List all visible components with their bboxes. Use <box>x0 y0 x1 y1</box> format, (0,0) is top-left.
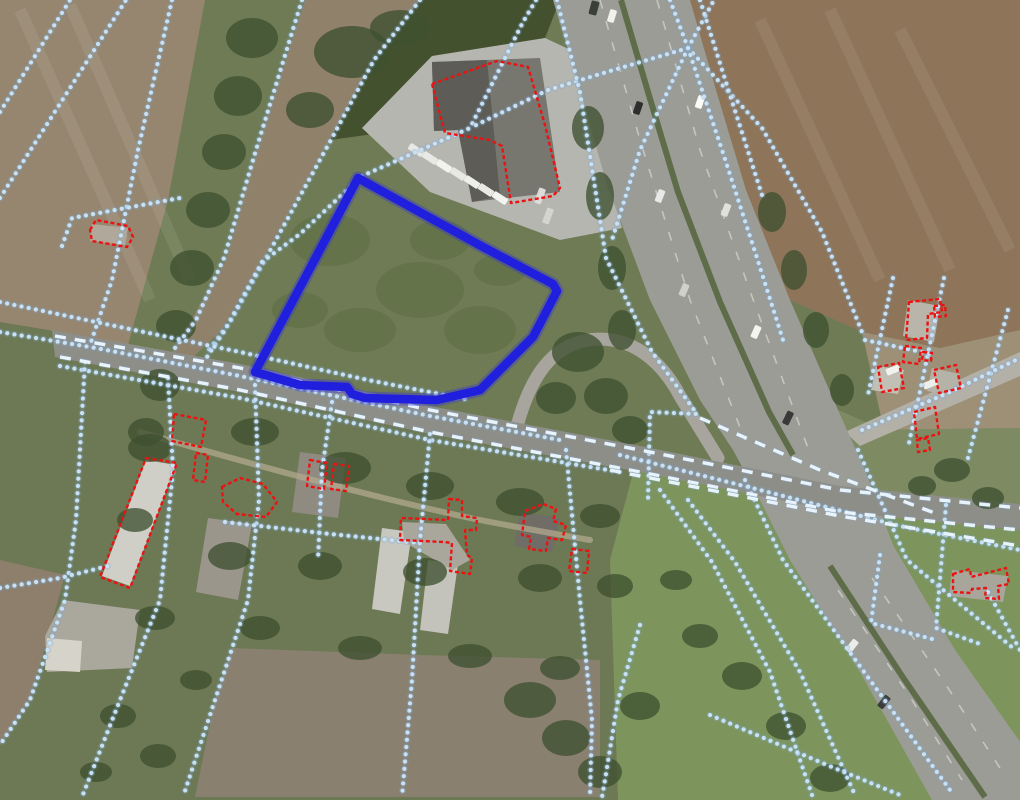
map-viewport[interactable] <box>0 0 1020 800</box>
tree-clump <box>612 416 648 444</box>
aerial-cadastral-map[interactable] <box>0 0 1020 800</box>
scrub-patch <box>444 306 516 354</box>
tree-clump <box>180 670 212 690</box>
tree-clump <box>448 644 492 668</box>
scrub-patch <box>376 262 464 318</box>
tree-clump <box>803 312 829 348</box>
tree-clump <box>214 76 262 116</box>
tree-clump <box>584 378 628 414</box>
tree-clump <box>781 250 807 290</box>
tree-clump <box>620 692 660 720</box>
tree-clump <box>403 558 447 586</box>
tree-clump <box>504 682 556 718</box>
tree-clump <box>186 192 230 228</box>
tree-clump <box>338 636 382 660</box>
tree-clump <box>208 542 252 570</box>
tree-clump <box>578 756 622 788</box>
tree-clump <box>908 476 936 496</box>
tree-clump <box>406 472 454 500</box>
field-bottom-center-brown <box>195 648 600 797</box>
tree-clump <box>536 382 576 414</box>
scrub-patch <box>324 308 396 352</box>
tree-clump <box>580 504 620 528</box>
tree-clump <box>540 656 580 680</box>
tree-clump <box>830 374 854 406</box>
tree-clump <box>240 616 280 640</box>
tree-clump <box>934 458 970 482</box>
tree-clump <box>542 720 590 756</box>
tree-clump <box>226 18 278 58</box>
tree-clump <box>552 332 604 372</box>
tree-clump <box>170 250 214 286</box>
tree-clump <box>660 570 692 590</box>
tree-clump <box>722 662 762 690</box>
tree-clump <box>682 624 718 648</box>
tree-clump <box>286 92 334 128</box>
tree-clump <box>140 744 176 768</box>
tree-clump <box>518 564 562 592</box>
tree-clump <box>496 488 544 516</box>
tree-clump <box>597 574 633 598</box>
tree-clump <box>202 134 246 170</box>
